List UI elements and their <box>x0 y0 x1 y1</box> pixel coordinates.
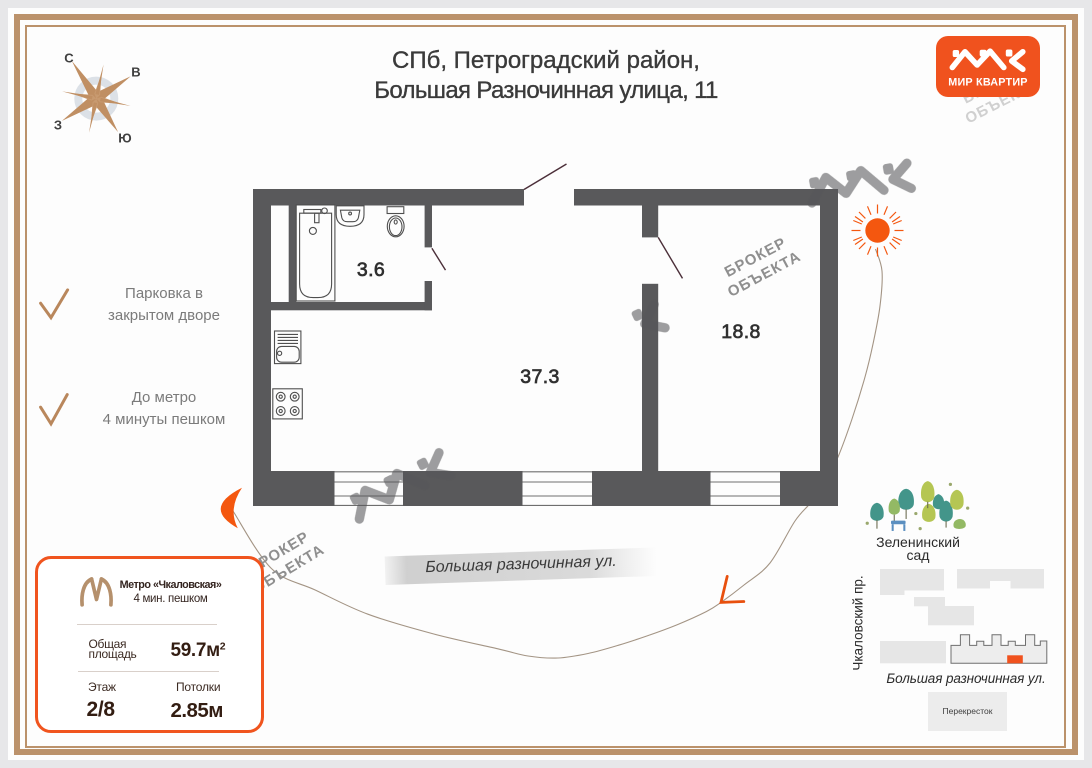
svg-text:МИР КВАРТИР: МИР КВАРТИР <box>948 77 1027 89</box>
